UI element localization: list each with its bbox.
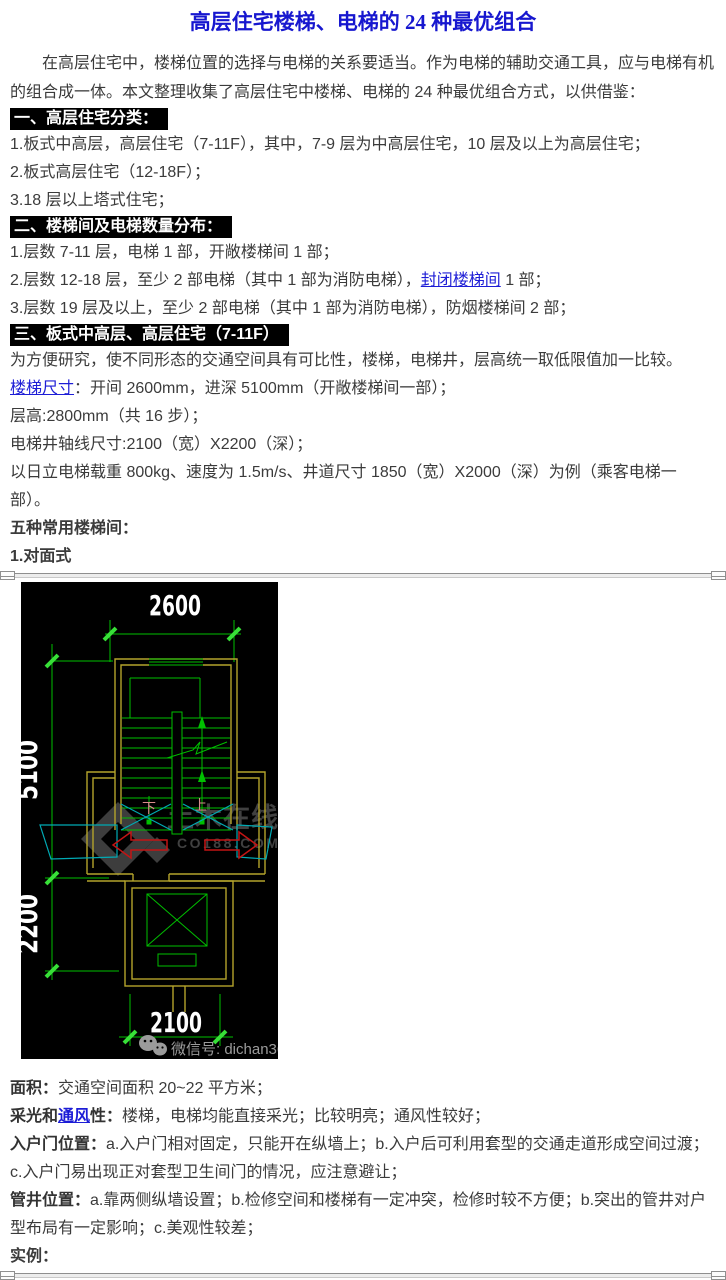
body-line: 3.18 层以上塔式住宅； [10,187,714,215]
body-line: 为方便研究，使不同形态的交通空间具有可比性，楼梯，电梯井，层高统一取低限值加一比… [10,347,714,375]
section-heading-3: 三、板式中高层、高层住宅（7-11F） [10,324,714,346]
body-line: 2.层数 12-18 层，至少 2 部电梯（其中 1 部为消防电梯），封闭楼梯间… [10,267,714,295]
article-page: 高层住宅楼梯、电梯的 24 种最优组合 在高层住宅中，楼梯位置的选择与电梯的关系… [0,0,726,1280]
note-area-text: 交通空间面积 20~22 平方米； [58,1080,272,1097]
note-duct-text: a.靠两侧纵墙设置；b.检修空间和楼梯有一定冲突，检修时较不方便；b.突出的管井… [10,1192,706,1237]
dim-left-lower-text: 2200 [21,894,44,954]
divider-endcap-left [0,571,15,580]
note-entry-door: 入户门位置：a.入户门相对固定，只能开在纵墙上；b.入户后可利用套型的交通走道形… [10,1131,714,1187]
body-line: 层高:2800mm（共 16 步）； [10,403,714,431]
article-body: 在高层住宅中，楼梯位置的选择与电梯的关系要适当。作为电梯的辅助交通工具，应与电梯… [0,49,726,571]
label-down: 下 [142,800,156,816]
stair-elevator-plan: 土木在线 CO188.COM 2600 5100 [21,582,278,1059]
note-lighting-label: 采光和 [10,1108,58,1125]
note-area: 面积：交通空间面积 20~22 平方米； [10,1075,714,1103]
cad-figure: 土木在线 CO188.COM 2600 5100 [21,582,278,1059]
section-heading-1: 一、高层住宅分类： [10,108,714,130]
body-line: 楼梯尺寸：开间 2600mm，进深 5100mm（开敞楼梯间一部）； [10,375,714,403]
dim-top-text: 2600 [149,589,201,622]
note-lighting-label-suffix: 性： [90,1108,122,1125]
divider-rule [0,1273,726,1278]
subheading-stair-types: 五种常用楼梯间： [10,515,714,543]
note-lighting: 采光和通风性：楼梯，电梯均能直接采光；比较明亮；通风性较好； [10,1103,714,1131]
note-duct: 管井位置：a.靠两侧纵墙设置；b.检修空间和楼梯有一定冲突，检修时较不方便；b.… [10,1187,714,1243]
intro-paragraph: 在高层住宅中，楼梯位置的选择与电梯的关系要适当。作为电梯的辅助交通工具，应与电梯… [10,49,714,107]
note-area-label: 面积： [10,1080,58,1097]
line-text: 1 部； [501,272,551,289]
dim-left-upper-text: 5100 [21,740,44,800]
notes-section: 面积：交通空间面积 20~22 平方米； 采光和通风性：楼梯，电梯均能直接采光；… [0,1075,726,1271]
page-title: 高层住宅楼梯、电梯的 24 种最优组合 [0,0,726,36]
section-heading-1-label: 一、高层住宅分类： [10,108,168,130]
body-line: 2.板式高层住宅（12-18F）； [10,159,714,187]
section-heading-2: 二、楼梯间及电梯数量分布： [10,216,714,238]
note-entry-door-text: a.入户门相对固定，只能开在纵墙上；b.入户后可利用套型的交通走道形成空间过渡；… [10,1136,709,1181]
wechat-label: 微信号: dichan360 [171,1041,278,1058]
body-line: 1.层数 7-11 层，电梯 1 部，开敞楼梯间 1 部； [10,239,714,267]
body-line: 以日立电梯载重 800kg、速度为 1.5m/s、井道尺寸 1850（宽）X20… [10,459,714,515]
link-enclosed-stairwell[interactable]: 封闭楼梯间 [421,272,501,289]
line-text: 2.层数 12-18 层，至少 2 部电梯（其中 1 部为消防电梯）， [10,272,421,289]
divider-rule [0,573,726,578]
stair-window [149,659,203,665]
body-line: 电梯井轴线尺寸:2100（宽）X2200（深）； [10,431,714,459]
section-heading-2-label: 二、楼梯间及电梯数量分布： [10,216,232,238]
divider-endcap-right [711,571,726,580]
dimension-top: 2600 [104,589,241,662]
body-line: 1.板式中高层，高层住宅（7-11F），其中，7-9 层为中高层住宅，10 层及… [10,131,714,159]
body-line: 3.层数 19 层及以上，至少 2 部电梯（其中 1 部为消防电梯），防烟楼梯间… [10,295,714,323]
dimension-left: 5100 2200 [21,644,119,980]
note-lighting-text: 楼梯，电梯均能直接采光；比较明亮；通风性较好； [122,1108,490,1125]
note-entry-door-label: 入户门位置： [10,1136,106,1153]
section-divider [0,571,726,580]
note-duct-label: 管井位置： [10,1192,90,1209]
line-text: ：开间 2600mm，进深 5100mm（开敞楼梯间一部）； [74,380,455,397]
subheading-type-1: 1.对面式 [10,543,714,571]
dim-bottom-text: 2100 [150,1006,202,1039]
tumu-logo-icon [81,802,170,876]
dimension-bottom: 2100 [119,994,233,1046]
elevator-car [147,894,207,966]
stair-stringer [172,712,182,834]
site-watermark-url: CO188.COM [177,835,278,851]
section-heading-3-label: 三、板式中高层、高层住宅（7-11F） [10,324,289,346]
link-ventilation[interactable]: 通风 [58,1108,90,1125]
link-stair-dimensions[interactable]: 楼梯尺寸 [10,380,74,397]
note-example-label: 实例： [10,1243,714,1271]
